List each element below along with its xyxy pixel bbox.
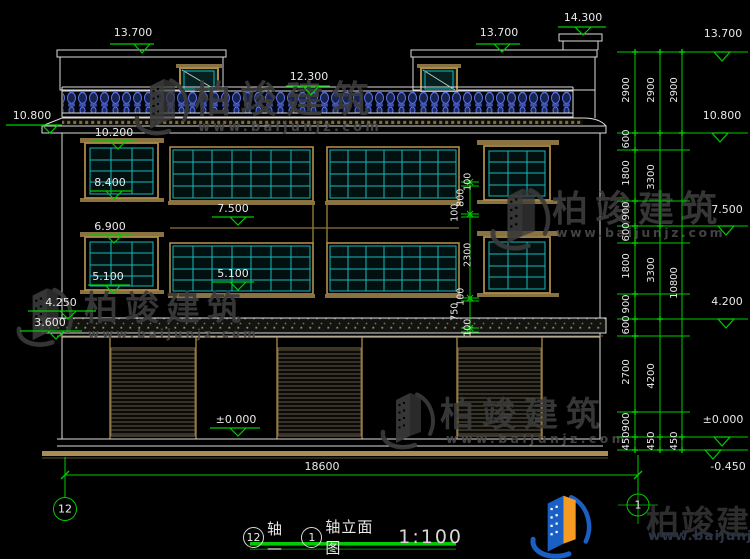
elevation-label-7500-center: 7.500 — [217, 203, 249, 215]
roller-shutter-door-1 — [111, 348, 195, 436]
elevation-label-13700-right: 13.700 — [704, 28, 743, 40]
watermark-brand: 柏竣建筑 — [84, 289, 248, 329]
watermark-url: www.baijunjz.com — [446, 431, 628, 446]
watermark-brand: 柏竣建筑 — [552, 189, 724, 230]
axis-bubble-left-label: 12 — [58, 503, 72, 516]
watermark-brand: 柏竣建筑 — [194, 78, 378, 121]
brand-logo-url: www.baijunjz.com — [648, 528, 750, 544]
watermark-url: www.baijunjz.com — [198, 120, 382, 135]
cad-elevation-canvas: 柏竣建筑 www.baijunjz.com 柏竣建筑 www.baijunjz.… — [0, 0, 750, 559]
right-parapet-wall — [573, 57, 595, 118]
ground-line — [42, 451, 608, 456]
elevation-label-8400: 8.400 — [94, 177, 126, 189]
watermark-brand: 柏竣建筑 — [440, 395, 608, 435]
dim-label: 2900 — [670, 68, 680, 112]
elevation-label-7500-right: 7.500 — [711, 204, 743, 216]
dim-label: 3300 — [647, 248, 657, 292]
dim-label: 450 — [647, 419, 657, 463]
title-text-1: 轴— — [267, 518, 298, 557]
elevation-label-0-right: ±0.000 — [703, 414, 744, 426]
dim-total-width: 18600 — [305, 461, 340, 473]
elevation-label-12300: 12.300 — [290, 71, 329, 83]
elevation-label-4200-right: 4.200 — [711, 296, 743, 308]
dim-label: 2300 — [463, 237, 473, 273]
elevation-label-0-center: ±0.000 — [216, 414, 257, 426]
title-axis-bubble-end: 1 — [301, 527, 322, 548]
penthouse-window-right — [417, 64, 461, 92]
dim-label: 750 — [450, 294, 460, 330]
elevation-label-5100-left: 5.100 — [92, 271, 124, 283]
watermark-glyph — [493, 189, 548, 249]
window-right-second-floor — [477, 231, 559, 297]
elevation-label-10800-right: 10.800 — [703, 110, 742, 122]
title-scale: 1:100 — [398, 526, 463, 548]
elevation-label-3600: 3.600 — [34, 317, 66, 329]
axis-bubble-right-label: 1 — [635, 499, 642, 512]
roller-shutter-door-2 — [278, 348, 361, 436]
dim-label: 10800 — [670, 261, 680, 305]
dim-label: 2900 — [647, 68, 657, 112]
window-left-third-floor — [80, 138, 164, 202]
dim-label: 4200 — [647, 354, 657, 398]
watermark-url: www.baijunjz.com — [556, 225, 725, 240]
curtain-wall — [168, 147, 461, 298]
title-text-2: 轴立面图 — [325, 516, 388, 558]
dim-label: 3300 — [647, 155, 657, 199]
watermark-url: www.baijunjz.com — [88, 327, 259, 341]
dim-label: 450 — [622, 419, 632, 463]
elevation-label-5100-center: 5.100 — [217, 268, 249, 280]
title-axis-bubble-start: 12 — [243, 527, 264, 548]
dim-label: 2900 — [622, 68, 632, 112]
elevation-label-13700-roof: 13.700 — [480, 27, 519, 39]
dim-label: 100 — [463, 310, 473, 346]
dim-label: 450 — [670, 419, 680, 463]
dim-label: 600 — [622, 303, 632, 347]
elevation-label-10200: 10.200 — [95, 127, 134, 139]
elevation-label-10800-left: 10.800 — [13, 110, 52, 122]
chimney — [559, 34, 602, 50]
dim-label: 2700 — [622, 350, 632, 394]
elevation-label-13700-left: 13.700 — [114, 27, 153, 39]
brand-logo-glyph — [533, 496, 589, 557]
dim-label: 100 — [450, 195, 460, 231]
elevation-label-6900: 6.900 — [94, 221, 126, 233]
elevation-label-14300: 14.300 — [564, 12, 603, 24]
drawing-title: 12 轴— 1 轴立面图 1:100 — [243, 516, 463, 558]
elevation-label-neg450: -0.450 — [710, 461, 745, 473]
elevation-label-4250: 4.250 — [45, 297, 77, 309]
